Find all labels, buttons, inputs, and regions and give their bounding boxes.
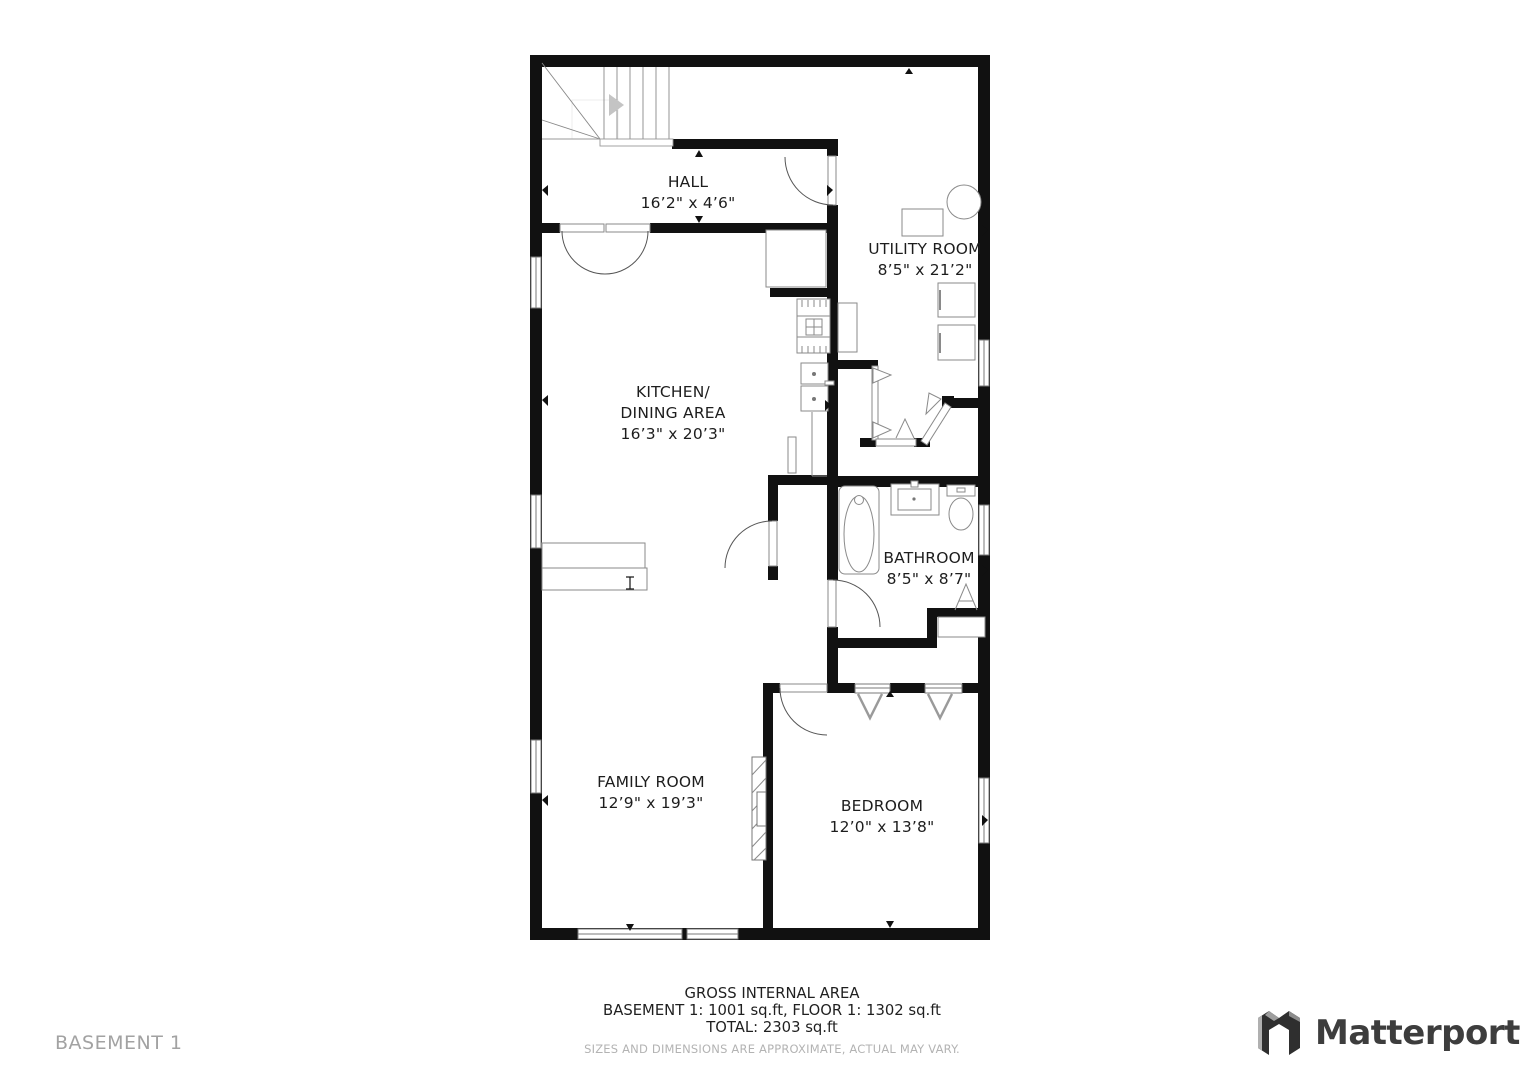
room-dims-bathroom: 8’5" x 8’7" <box>887 570 972 588</box>
water-tank <box>947 185 981 219</box>
room-label-kitchen-line1: KITCHEN/ <box>636 383 711 401</box>
closet-shelf <box>938 617 985 637</box>
staircase <box>542 63 673 146</box>
room-dims-family: 12’9" x 19’3" <box>599 794 704 812</box>
toilet <box>947 485 975 530</box>
washer <box>938 283 975 317</box>
stove <box>797 299 830 353</box>
area-total: TOTAL: 2303 sq.ft <box>472 1020 1072 1036</box>
room-label-kitchen-line2: DINING AREA <box>620 404 725 422</box>
kitchen-fixtures <box>766 230 834 476</box>
room-label-utility: UTILITY ROOM <box>868 240 981 258</box>
room-label-bedroom: BEDROOM <box>841 797 923 815</box>
room-dims-bedroom: 12’0" x 13’8" <box>830 818 935 836</box>
dryer <box>938 325 975 360</box>
gross-area-title: GROSS INTERNAL AREA <box>472 986 1072 1002</box>
matterport-logo-icon <box>1256 1008 1302 1058</box>
floor-label: BASEMENT 1 <box>55 1032 182 1054</box>
brand-name: Matterport <box>1315 1013 1520 1053</box>
chimney <box>752 757 766 860</box>
bathtub <box>839 486 879 574</box>
counter <box>542 543 645 568</box>
bathroom-sink <box>891 481 939 515</box>
window-well-marks <box>858 694 952 718</box>
brand: Matterport <box>1256 1008 1520 1058</box>
floor-plan-page: HALL 16’2" x 4’6" UTILITY ROOM 8’5" x 21… <box>0 0 1527 1080</box>
room-label-family: FAMILY ROOM <box>597 773 705 791</box>
room-label-bathroom: BATHROOM <box>883 549 974 567</box>
disclaimer-text: SIZES AND DIMENSIONS ARE APPROXIMATE, AC… <box>472 1041 1072 1057</box>
family-room-fixtures <box>542 543 766 860</box>
stair-direction-arrow-icon <box>609 94 624 116</box>
fridge <box>766 230 826 287</box>
footer-area: GROSS INTERNAL AREA BASEMENT 1: 1001 sq.… <box>472 986 1072 1058</box>
floor-plan-svg: HALL 16’2" x 4’6" UTILITY ROOM 8’5" x 21… <box>0 0 1527 1080</box>
room-dims-kitchen: 16’3" x 20’3" <box>621 425 726 443</box>
room-dims-hall: 16’2" x 4’6" <box>641 194 736 212</box>
area-breakdown: BASEMENT 1: 1001 sq.ft, FLOOR 1: 1302 sq… <box>472 1003 1072 1019</box>
room-label-hall: HALL <box>668 173 708 191</box>
counter <box>542 568 647 590</box>
room-dims-utility: 8’5" x 21’2" <box>878 261 973 279</box>
